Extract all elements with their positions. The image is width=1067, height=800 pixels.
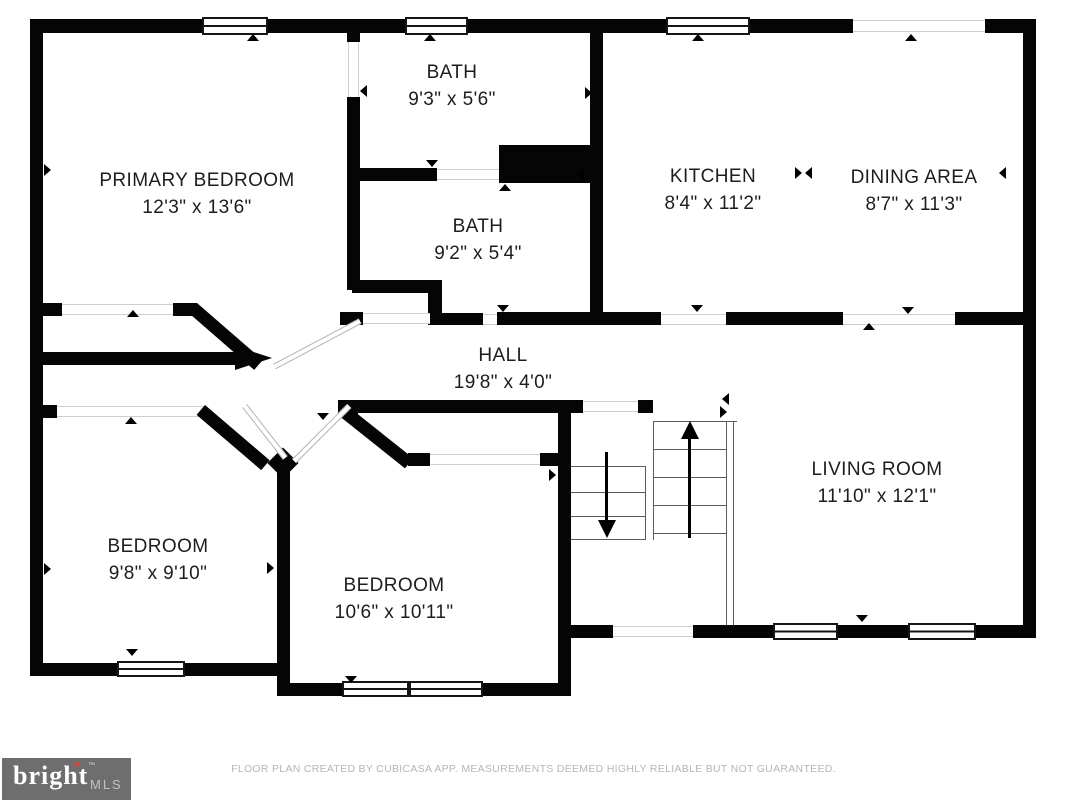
- wall-segment: [976, 625, 1036, 638]
- wall-segment: [468, 19, 666, 33]
- wall-segment: [43, 352, 235, 365]
- door-opening: [583, 401, 638, 412]
- door-opening: [843, 314, 955, 325]
- brightmls-logo: bright ✦ ™ MLS: [2, 758, 131, 800]
- wall-segment: [430, 313, 483, 325]
- door-marker-icon: [691, 305, 703, 312]
- door-marker-icon: [125, 417, 137, 424]
- wall-segment: [43, 303, 62, 316]
- logo-star-icon: ✦: [72, 757, 83, 773]
- room-name: BEDROOM: [254, 572, 534, 599]
- room-name: BATH: [338, 213, 618, 240]
- door-marker-icon: [720, 406, 727, 418]
- room-name: HALL: [363, 342, 643, 369]
- door-marker-icon: [905, 34, 917, 41]
- room-label-hall: HALL 19'8" x 4'0": [363, 342, 643, 396]
- room-dimensions: 9'2" x 5'4": [338, 240, 618, 267]
- wall-segment: [571, 625, 613, 638]
- stair-stringer-line: [653, 421, 654, 540]
- door-marker-icon: [549, 469, 556, 481]
- room-name: PRIMARY BEDROOM: [57, 167, 337, 194]
- stair-tread-line: [571, 466, 646, 467]
- door-marker-icon: [692, 34, 704, 41]
- door-marker-icon: [856, 615, 868, 622]
- door-opening: [363, 313, 430, 324]
- door-opening: [57, 406, 205, 417]
- room-label-living-room: LIVING ROOM 11'10" x 12'1": [737, 456, 1017, 510]
- wall-segment: [30, 19, 202, 33]
- wall-segment-diagonal: [337, 404, 413, 468]
- door-marker-icon: [345, 676, 357, 683]
- room-label-bath-top: BATH 9'3" x 5'6": [312, 59, 592, 113]
- room-dimensions: 8'7" x 11'3": [774, 191, 1054, 218]
- logo-trademark: ™: [88, 762, 95, 769]
- door-opening: [483, 314, 497, 325]
- wall-segment: [347, 33, 360, 42]
- wall-segment: [1023, 19, 1036, 638]
- wall-segment: [277, 683, 342, 696]
- window-symbol: [202, 17, 268, 35]
- room-dimensions: 19'8" x 4'0": [363, 369, 643, 396]
- door-opening: [613, 626, 693, 637]
- wall-segment: [355, 168, 437, 181]
- door-opening: [853, 20, 985, 32]
- stair-stringer-line: [645, 466, 646, 540]
- wall-segment: [726, 312, 843, 325]
- door-marker-icon: [127, 310, 139, 317]
- room-label-bedroom-middle: BEDROOM 10'6" x 10'11": [254, 572, 534, 626]
- door-marker-icon: [722, 393, 729, 405]
- stair-tread-line: [571, 516, 646, 517]
- door-marker-icon: [499, 184, 511, 191]
- stair-rail-line: [726, 421, 727, 625]
- door-opening: [437, 169, 499, 180]
- room-dimensions: 12'3" x 13'6": [57, 194, 337, 221]
- window-symbol: [773, 623, 838, 640]
- wall-segment: [750, 19, 853, 33]
- stair-tread-line: [571, 492, 646, 493]
- stairs-up-arrow-shaft: [688, 438, 691, 538]
- wall-segment: [497, 312, 661, 325]
- wall-point: [235, 346, 272, 370]
- window-symbol: [342, 681, 409, 697]
- window-symbol: [405, 17, 468, 35]
- door-opening: [661, 314, 726, 325]
- wall-segment: [638, 400, 653, 413]
- wall-segment: [955, 312, 1024, 325]
- door-marker-icon: [902, 307, 914, 314]
- window-symbol: [117, 661, 185, 677]
- room-name: BEDROOM: [18, 533, 298, 560]
- window-symbol: [908, 623, 976, 640]
- door-marker-icon: [426, 160, 438, 167]
- door-marker-icon: [424, 34, 436, 41]
- door-marker-icon: [317, 413, 329, 420]
- room-label-primary-bedroom: PRIMARY BEDROOM 12'3" x 13'6": [57, 167, 337, 221]
- wall-segment: [30, 663, 117, 676]
- wall-segment: [693, 625, 773, 638]
- room-dimensions: 10'6" x 10'11": [254, 599, 534, 626]
- door-marker-icon: [126, 649, 138, 656]
- room-dimensions: 11'10" x 12'1": [737, 483, 1017, 510]
- room-label-bath-middle: BATH 9'2" x 5'4": [338, 213, 618, 267]
- door-opening: [430, 454, 540, 465]
- window-symbol: [409, 681, 483, 697]
- wall-segment-diagonal: [197, 405, 270, 470]
- wall-segment: [558, 400, 571, 696]
- window-symbol: [666, 17, 750, 35]
- room-name: LIVING ROOM: [737, 456, 1017, 483]
- room-dimensions: 9'3" x 5'6": [312, 86, 592, 113]
- room-label-dining-area: DINING AREA 8'7" x 11'3": [774, 164, 1054, 218]
- door-marker-icon: [44, 164, 51, 176]
- open-door-swing: [273, 318, 361, 369]
- wall-segment: [348, 400, 583, 413]
- disclaimer-text: FLOOR PLAN CREATED BY CUBICASA APP. MEAS…: [0, 763, 1067, 775]
- wall-segment: [408, 453, 430, 466]
- wall-segment: [43, 405, 57, 418]
- wall-segment: [268, 19, 405, 33]
- stairs-down-arrow-shaft: [605, 452, 608, 522]
- floor-plan: PRIMARY BEDROOM 12'3" x 13'6" BATH 9'3" …: [0, 0, 1067, 800]
- door-marker-icon: [863, 323, 875, 330]
- stair-rail-line: [733, 421, 734, 625]
- stairs-down-arrow-icon: [598, 520, 616, 538]
- door-marker-icon: [497, 305, 509, 312]
- room-name: BATH: [312, 59, 592, 86]
- wall-segment: [838, 625, 908, 638]
- closet-opening: [62, 304, 173, 315]
- room-name: DINING AREA: [774, 164, 1054, 191]
- wall-segment: [185, 663, 277, 676]
- wall-segment: [540, 453, 571, 466]
- stairs-up-arrow-icon: [681, 421, 699, 439]
- door-marker-icon: [247, 34, 259, 41]
- logo-mls-text: MLS: [90, 777, 123, 792]
- stair-tread-line: [571, 539, 646, 540]
